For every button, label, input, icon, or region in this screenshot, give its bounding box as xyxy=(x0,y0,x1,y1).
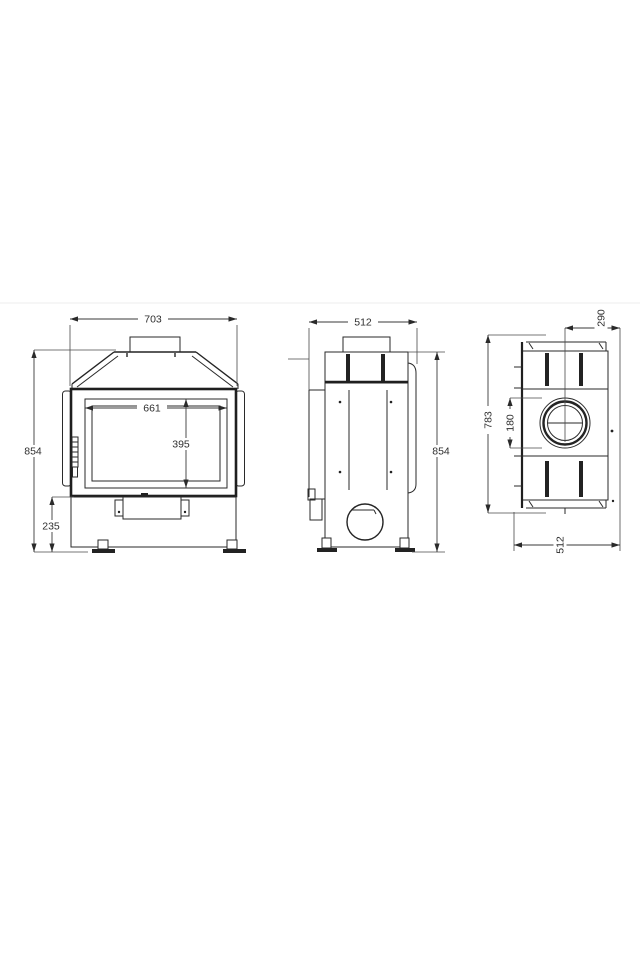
front-hood xyxy=(72,352,238,389)
front-foot-left xyxy=(98,540,108,549)
side-foot-right xyxy=(400,538,409,548)
top-slat xyxy=(545,461,549,497)
dim-label-front-overall-width: 703 xyxy=(144,314,162,326)
front-base xyxy=(71,497,236,547)
front-foot-pad-left xyxy=(92,549,115,553)
side-rear-flange xyxy=(408,363,416,493)
top-side-stud xyxy=(612,500,614,502)
side-body xyxy=(325,383,408,547)
front-dimensions: 703 661 395 854 235 xyxy=(18,313,237,552)
top-flange-tick xyxy=(599,343,603,349)
dim-label-side-overall-height: 854 xyxy=(432,446,450,458)
front-door-latch xyxy=(141,493,148,496)
dim-label-top-width: 783 xyxy=(483,411,495,429)
front-view: 703 661 395 854 235 xyxy=(18,313,246,553)
dim-label-front-glass-height: 395 xyxy=(172,439,190,451)
front-flue-collar xyxy=(130,337,180,352)
dim-label-top-depth: 512 xyxy=(555,536,567,554)
dim-label-side-depth: 512 xyxy=(354,317,372,329)
dim-label-front-overall-height: 854 xyxy=(24,446,42,458)
top-slat xyxy=(579,461,583,497)
front-foot-pad-right xyxy=(223,549,246,553)
technical-drawing: 703 661 395 854 235 xyxy=(0,0,640,960)
top-body xyxy=(514,342,614,514)
top-flange-tick xyxy=(599,501,603,507)
dim-label-top-flue-to-back: 290 xyxy=(596,309,608,327)
dim-label-front-base-height: 235 xyxy=(42,521,60,533)
top-slat xyxy=(579,353,583,386)
front-foot-right xyxy=(227,540,237,549)
top-slat xyxy=(545,353,549,386)
dim-label-front-glass-width: 661 xyxy=(143,403,161,415)
side-hood-box xyxy=(325,352,408,383)
drawing-page: 703 661 395 854 235 xyxy=(0,0,640,960)
top-flange-tick xyxy=(529,343,533,349)
top-flange-tick xyxy=(529,501,533,507)
front-door-handle xyxy=(72,437,78,477)
side-door-profile xyxy=(288,359,325,520)
side-air-inlet xyxy=(347,504,383,540)
front-door-glass-inner xyxy=(92,406,220,481)
dim-label-top-flue-diameter: 180 xyxy=(505,414,517,432)
side-flue-collar xyxy=(343,337,390,352)
side-foot-pad-left xyxy=(317,548,337,552)
front-ash-cover xyxy=(123,497,181,519)
top-side-stud xyxy=(611,430,614,433)
top-view: 290 783 180 512 xyxy=(482,305,621,559)
side-foot-pad-right xyxy=(395,548,415,552)
side-foot-left xyxy=(322,538,331,548)
side-view: 512 854 xyxy=(288,316,456,552)
side-handle xyxy=(310,499,322,520)
